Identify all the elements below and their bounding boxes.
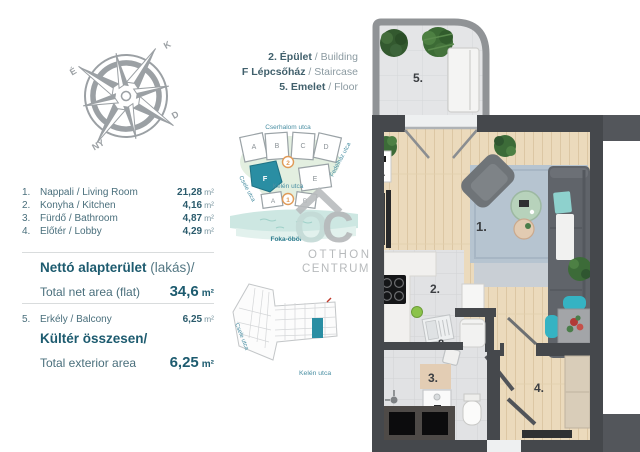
ext-label-en: Total exterior area (40, 356, 170, 370)
plant-icon (568, 257, 592, 281)
room-row-lobby: 4. Előtér / Lobby 4,29 m² (22, 225, 214, 238)
wall-top (477, 115, 603, 132)
room-row-balcony: 5. Erkély / Balcony 6,25 m² (22, 313, 214, 326)
unit-staircase: F Lépcsőház / Staircase (200, 65, 358, 80)
plant-icon (494, 135, 516, 157)
exterior-area-block: Kültér összesen/ Total exterior area 6,2… (40, 331, 214, 371)
site-marker-2: 2 (286, 160, 290, 167)
building-e-label: E (313, 176, 318, 183)
apartment-floorplan: 5. (372, 0, 640, 452)
net-area-block: Nettó alapterület (lakás)/ Total net are… (40, 259, 214, 300)
building-d-label: D (323, 144, 328, 151)
room-list: 1. Nappali / Living Room 21,28 m² 2. Kon… (22, 186, 214, 238)
side-table (514, 219, 534, 239)
net-title: Nettó alapterület (40, 260, 147, 275)
floor-map-street-bottom: Kelén utca (299, 370, 331, 377)
highlighted-unit (312, 318, 323, 338)
balcony-bench (448, 48, 479, 112)
stool (442, 348, 460, 366)
floorplan-sheet: É K D NY 2. Épület / Building F Lépcsőhá… (0, 0, 640, 452)
tv (386, 190, 391, 248)
building-c-label: C (300, 143, 305, 150)
dining-chair (545, 315, 559, 338)
compass-rose-icon: É K D NY (58, 26, 194, 166)
plan-label-balcony: 5. (413, 71, 423, 85)
logo-text-1: OTTHON (308, 249, 372, 261)
unit-floor: 5. Emelet / Floor (200, 80, 358, 95)
unit-building: 2. Épület / Building (200, 50, 358, 65)
building-a2-label: A (271, 198, 276, 205)
toilet (463, 394, 481, 425)
divider (22, 303, 214, 304)
street-top-label: Cserhalom utca (265, 124, 311, 131)
plan-label-living: 1. (476, 219, 487, 234)
entry-door (522, 430, 572, 438)
floor-outline-map: Csele utca Kelén utca (215, 272, 350, 407)
building-f-label: F (263, 174, 268, 183)
compass-north-label: É (68, 66, 78, 78)
otthon-centrum-logo: O C OTTHON CENTRUM (292, 186, 380, 278)
room-row-living: 1. Nappali / Living Room 21,28 m² (22, 186, 214, 199)
throw-blanket (556, 214, 574, 260)
ext-title: Kültér összesen/ (40, 331, 214, 346)
entry-threshold (487, 440, 521, 452)
site-marker-1: 1 (286, 197, 290, 204)
teal-pillow (553, 191, 572, 214)
ext-value: 6,25 (170, 354, 199, 371)
room-row-bathroom: 3. Fürdő / Bathroom 4,87 m² (22, 212, 214, 225)
compass-west-label: NY (90, 137, 106, 152)
plant-icon (412, 307, 423, 318)
plan-label-kitchen: 2. (430, 282, 440, 296)
building-a-label: A (252, 144, 257, 151)
building-b-label: B (275, 143, 280, 150)
wall-left (372, 115, 384, 452)
balcony-plant-icon (380, 29, 408, 57)
compass-east-label: K (162, 39, 173, 51)
dining-chair (563, 296, 586, 310)
logo-letter-c: C (322, 203, 354, 252)
wall-right (590, 115, 603, 452)
divider (22, 252, 214, 253)
plan-label-lobby: 4. (534, 381, 544, 395)
plan-label-bathroom: 3. (428, 371, 438, 385)
net-value: 34,6 (170, 283, 199, 300)
net-label-en: Total net area (flat) (40, 285, 170, 299)
unit-info: 2. Épület / Building F Lépcsőház / Stair… (200, 50, 358, 95)
compass-south-label: D (170, 109, 181, 121)
room-row-kitchen: 2. Konyha / Kitchen 4,16 m² (22, 199, 214, 212)
balcony-row-wrap: 5. Erkély / Balcony 6,25 m² (22, 313, 214, 326)
